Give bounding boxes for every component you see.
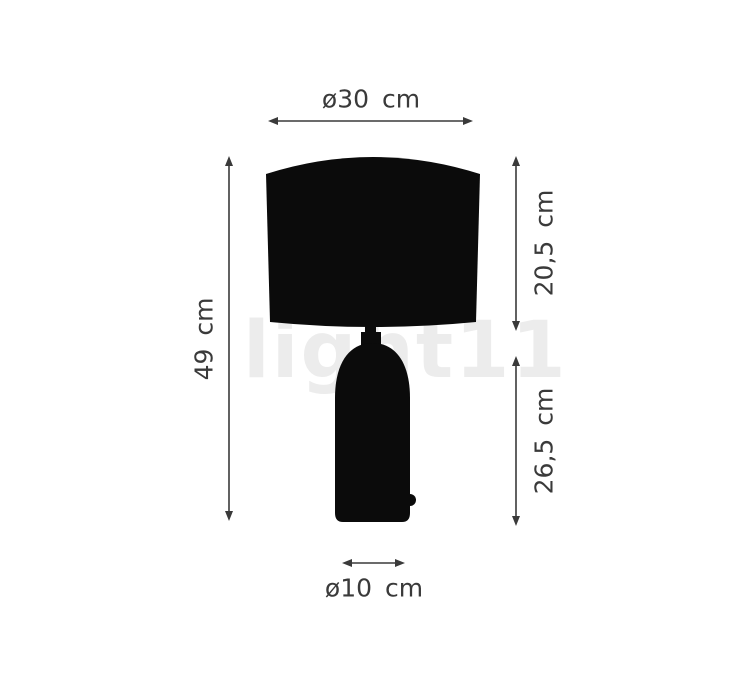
arrowhead-left-icon — [268, 117, 278, 125]
dimension-diagram: light11 — [0, 0, 744, 678]
base-height-arrow — [512, 356, 520, 526]
base-diameter-label: ø10 cm — [325, 574, 423, 603]
base-diameter-arrow — [342, 559, 405, 567]
lamp-base-silhouette — [335, 343, 410, 522]
arrowhead-left-icon — [342, 559, 352, 567]
arrowhead-down-icon — [225, 511, 233, 521]
shade-height-label: 20,5 cm — [530, 190, 559, 297]
arrowhead-up-icon — [512, 156, 520, 166]
arrowhead-right-icon — [463, 117, 473, 125]
arrowhead-right-icon — [395, 559, 405, 567]
lamp-silhouette — [266, 157, 480, 522]
base-height-label: 26,5 cm — [530, 388, 559, 495]
lamp-shade-silhouette — [266, 157, 480, 327]
shade-diameter-label: ø30 cm — [322, 85, 420, 114]
arrowhead-down-icon — [512, 516, 520, 526]
total-height-label: 49 cm — [190, 298, 219, 381]
arrowhead-up-icon — [512, 356, 520, 366]
arrowhead-up-icon — [225, 156, 233, 166]
shade-diameter-arrow — [268, 117, 473, 125]
shade-height-arrow — [512, 156, 520, 331]
total-height-arrow — [225, 156, 233, 521]
arrowhead-down-icon — [512, 321, 520, 331]
